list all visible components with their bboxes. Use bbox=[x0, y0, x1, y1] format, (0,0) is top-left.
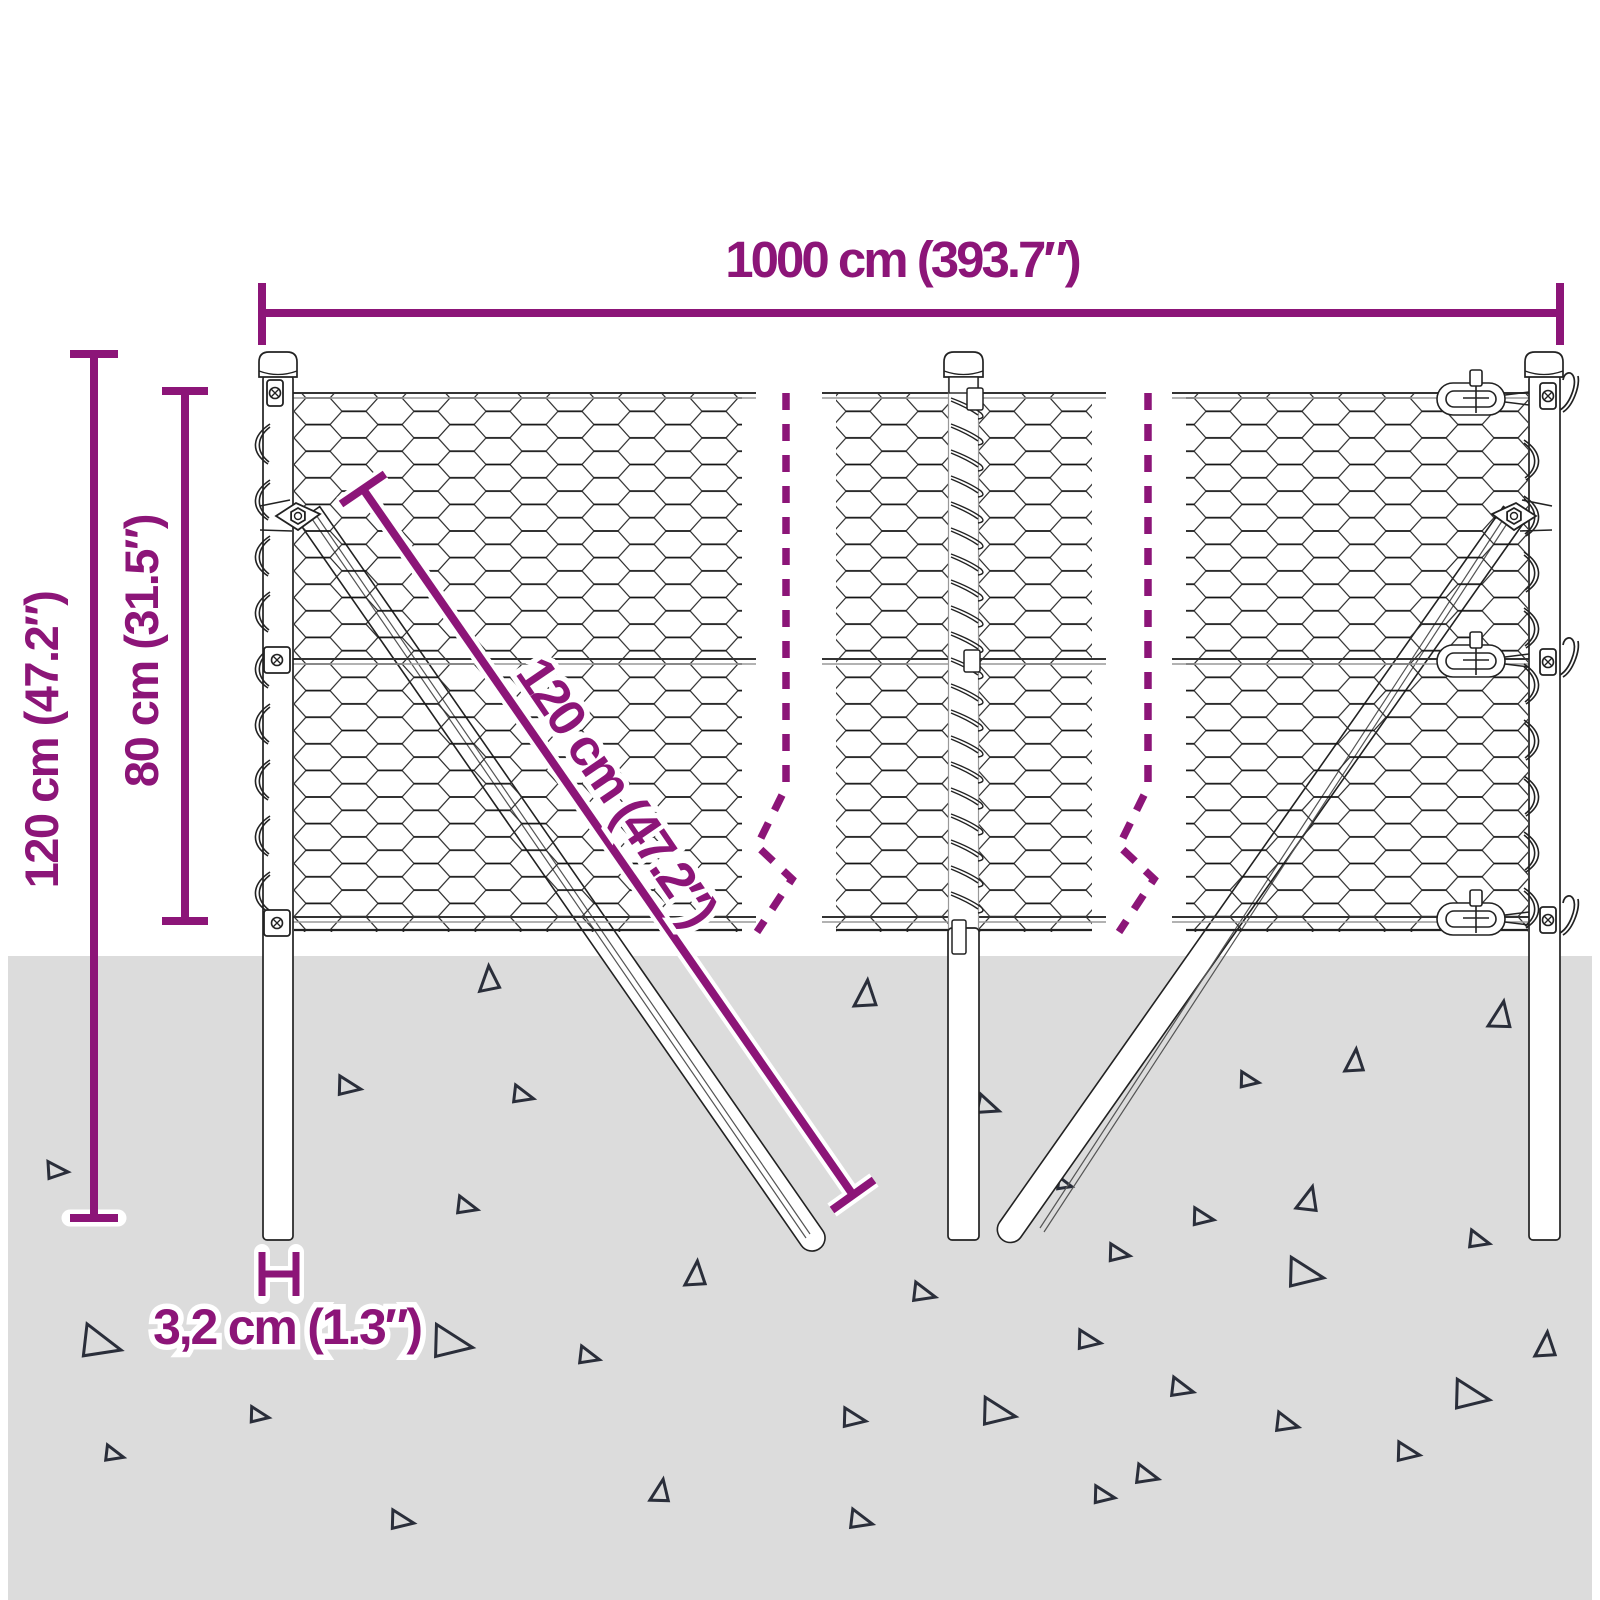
svg-text:80 cm (31.5″): 80 cm (31.5″) bbox=[115, 515, 168, 787]
svg-text:120 cm (47.2″): 120 cm (47.2″) bbox=[15, 592, 68, 889]
svg-text:3,2 cm (1.3″): 3,2 cm (1.3″) bbox=[153, 1299, 421, 1355]
svg-text:1000 cm (393.7″): 1000 cm (393.7″) bbox=[725, 231, 1080, 288]
